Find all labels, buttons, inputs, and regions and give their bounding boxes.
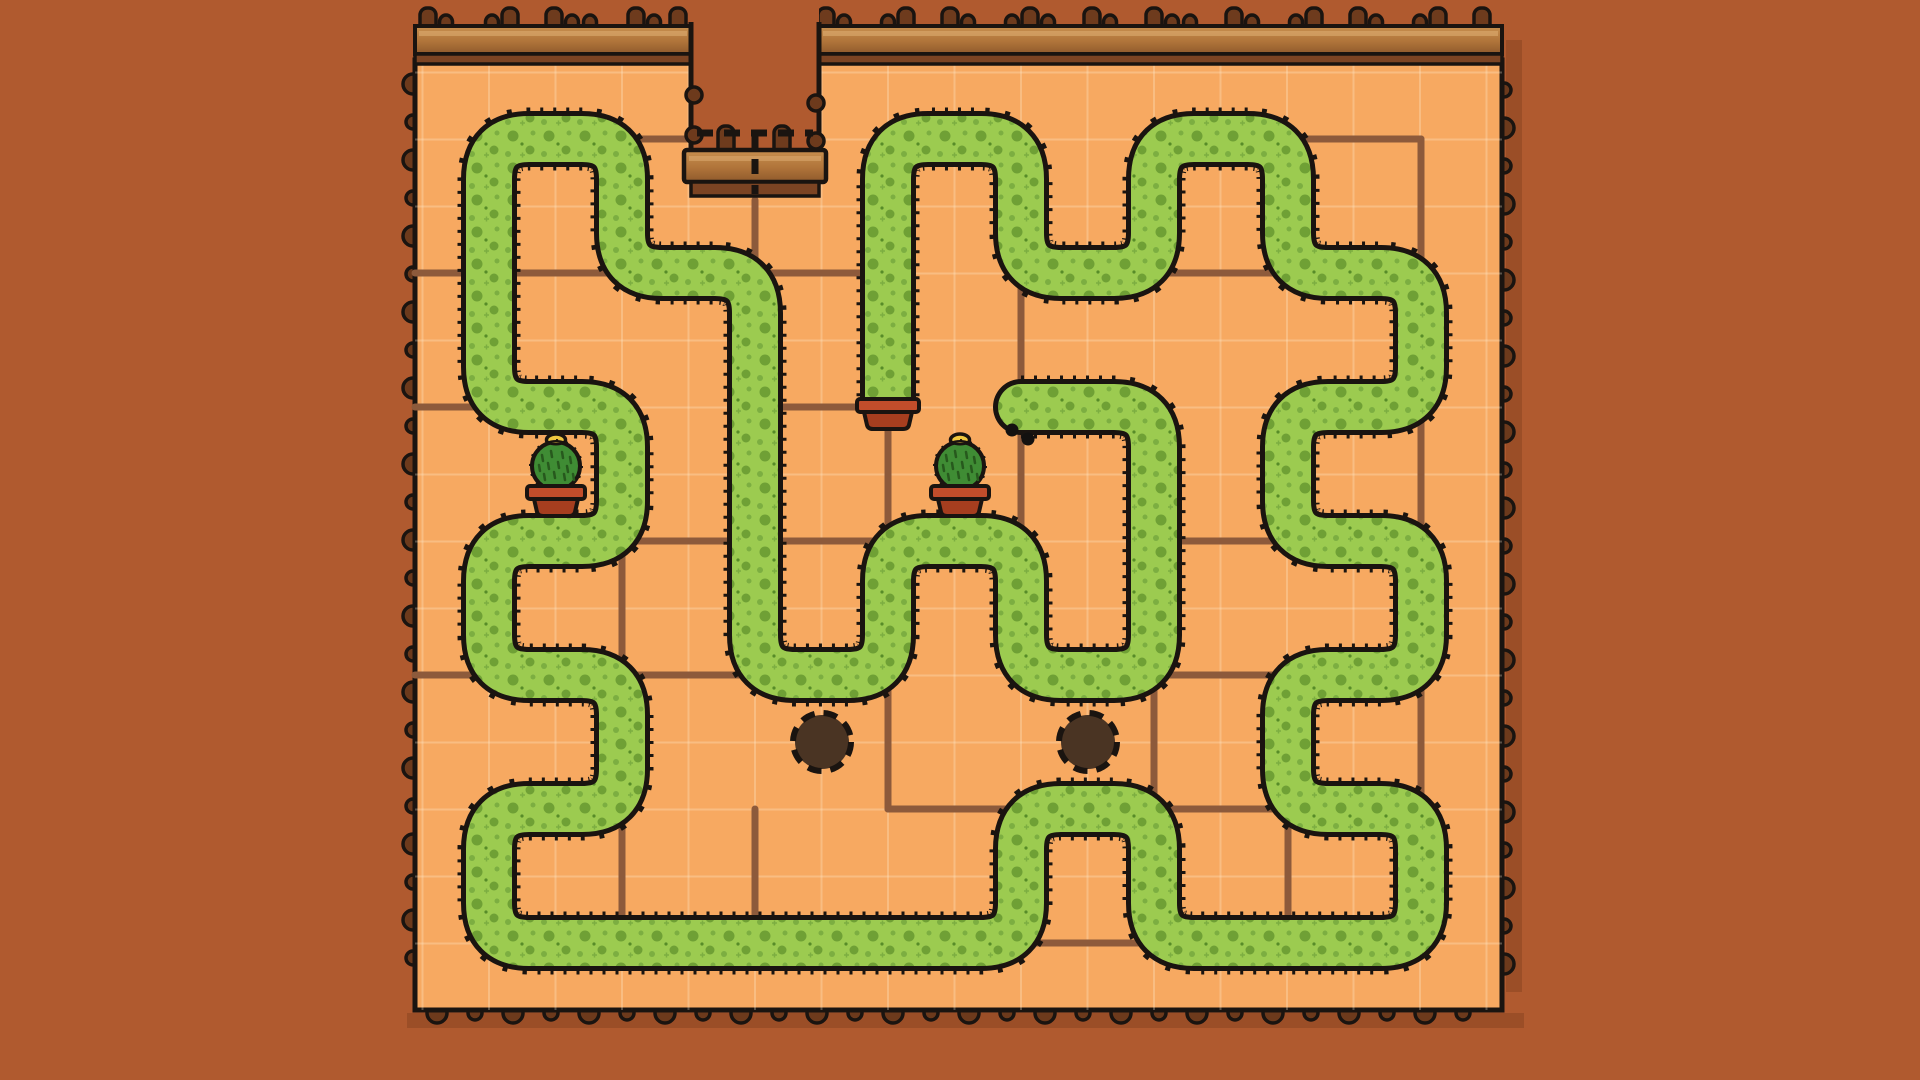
hedge-pot — [857, 399, 919, 429]
game-screen — [0, 0, 1920, 1080]
garden-maze-board[interactable] — [0, 0, 1920, 1080]
